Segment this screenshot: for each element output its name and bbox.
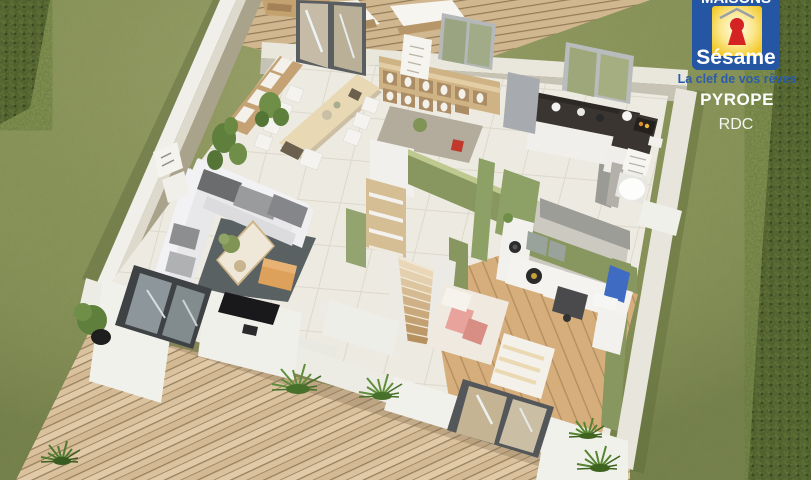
svg-text:RDC: RDC — [719, 116, 754, 133]
svg-text:Sésame: Sésame — [696, 46, 775, 69]
svg-text:PYROPE: PYROPE — [700, 90, 774, 109]
svg-text:MAISONS: MAISONS — [701, 0, 771, 7]
svg-text:La clef de vos rêves: La clef de vos rêves — [678, 72, 797, 86]
